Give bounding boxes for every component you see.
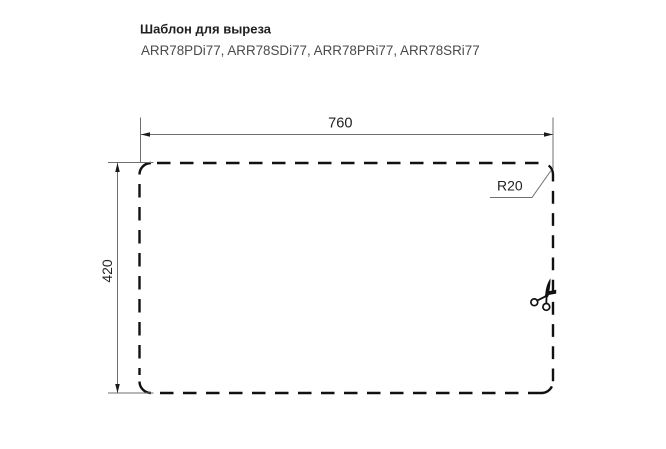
svg-text:ARR78PDi77, ARR78SDi77, ARR78P: ARR78PDi77, ARR78SDi77, ARR78PRi77, ARR7… (141, 43, 480, 58)
svg-text:760: 760 (328, 115, 352, 131)
svg-text:420: 420 (99, 259, 115, 283)
svg-text:R20: R20 (497, 178, 523, 194)
svg-text:Шаблон для выреза: Шаблон для выреза (140, 22, 272, 37)
